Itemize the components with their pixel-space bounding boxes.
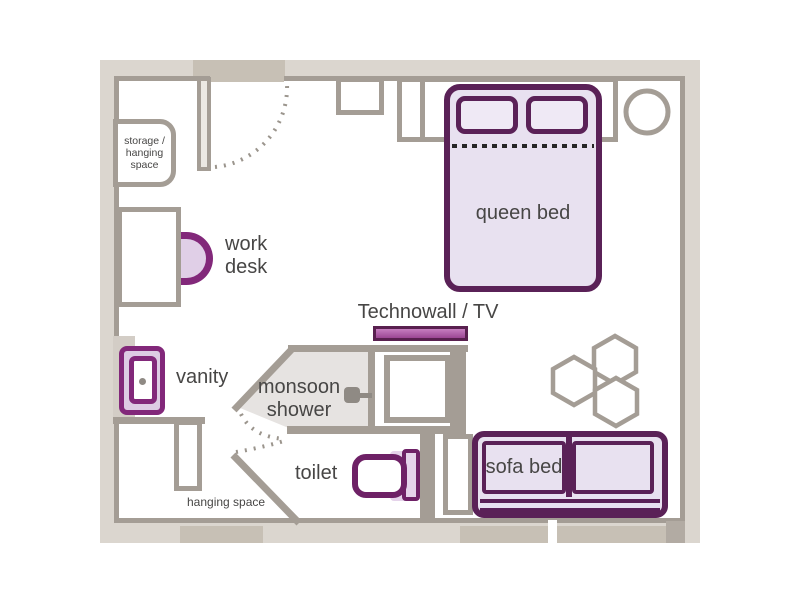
bed-sheet-line: [452, 144, 594, 148]
bottom-wall-dark-band-left: [180, 526, 263, 543]
sofa-cushion: [572, 441, 654, 494]
shower-head-arm: [359, 393, 372, 398]
pillow: [526, 96, 588, 134]
queen-bed-label: queen bed: [450, 202, 596, 225]
floor-plan: storage / hanging space work desk vanity…: [0, 0, 800, 600]
toilet-fixture: [352, 454, 407, 498]
hanging-closet: [174, 420, 202, 491]
technowall-label: Technowall / TV: [352, 301, 504, 324]
shower-inner-wall: [368, 352, 375, 429]
console-divider: [420, 77, 425, 142]
tv-bar: [373, 326, 468, 341]
toilet-label: toilet: [295, 462, 337, 485]
monsoon-shower-label: monsoon shower: [253, 376, 345, 422]
bottom-wall-gap: [548, 520, 557, 543]
entry-door-opening: [210, 72, 284, 82]
sofa-bed: sofa bed: [472, 431, 668, 518]
shower-shelf: [384, 355, 451, 423]
shower-top-wall: [288, 345, 468, 352]
pillow: [456, 96, 518, 134]
service-shaft: [443, 434, 473, 515]
queen-bed: queen bed: [444, 84, 602, 292]
sofa-divider: [566, 437, 572, 497]
bottom-wall-corner-return: [666, 521, 685, 543]
work-desk: [117, 207, 181, 307]
storage-label: storage / hanging space: [124, 135, 165, 171]
drain-icon: [139, 378, 146, 385]
sofa-bed-label: sofa bed: [482, 456, 566, 479]
storage-hanging-space-box: storage / hanging space: [113, 119, 176, 187]
sofa-frame-line: [480, 508, 660, 512]
sofa-frame-line: [480, 499, 660, 503]
work-desk-label: work desk: [225, 233, 267, 279]
bottom-wall-dark-band-right: [460, 526, 668, 543]
entry-door: [197, 77, 211, 171]
shower-head-icon: [344, 387, 360, 403]
toilet-room-pier: [420, 432, 435, 521]
wall-stub: [450, 345, 466, 434]
wall-niche: [336, 77, 384, 115]
hanging-space-label: hanging space: [187, 495, 265, 509]
vanity-label: vanity: [176, 366, 228, 389]
